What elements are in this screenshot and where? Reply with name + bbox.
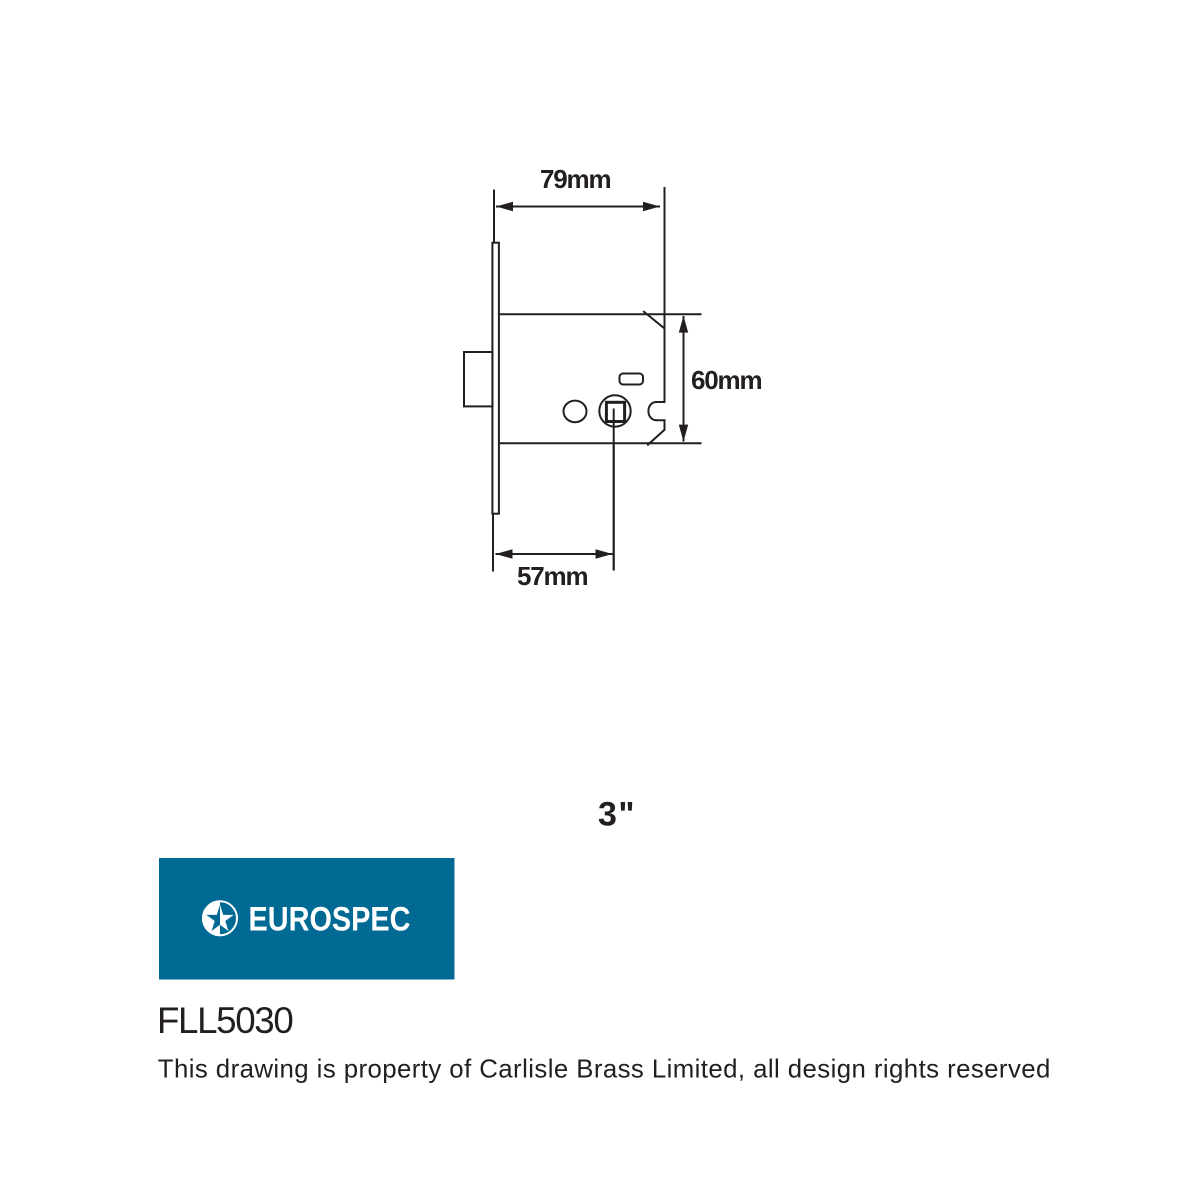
svg-text:60mm: 60mm <box>691 365 761 395</box>
svg-text:57mm: 57mm <box>517 561 587 591</box>
svg-text:FLL5030: FLL5030 <box>157 1000 292 1041</box>
svg-text:79mm: 79mm <box>540 164 610 194</box>
svg-text:EUROSPEC: EUROSPEC <box>249 900 411 938</box>
svg-text:This drawing is property of Ca: This drawing is property of Carlisle Bra… <box>158 1055 1051 1083</box>
svg-text:3": 3" <box>598 795 636 833</box>
